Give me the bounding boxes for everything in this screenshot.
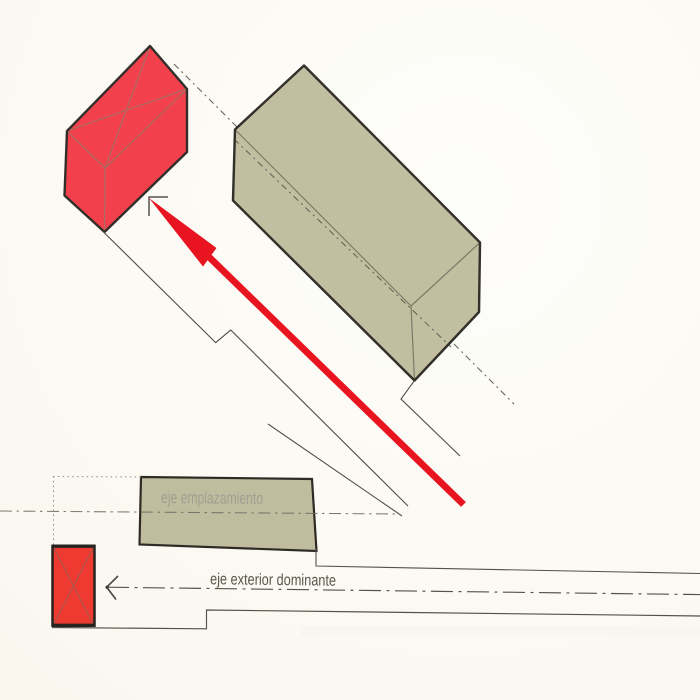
svg-text:eje exterior dominante: eje exterior dominante [210,571,336,590]
svg-text:eje emplazamiento: eje emplazamiento [161,488,263,508]
